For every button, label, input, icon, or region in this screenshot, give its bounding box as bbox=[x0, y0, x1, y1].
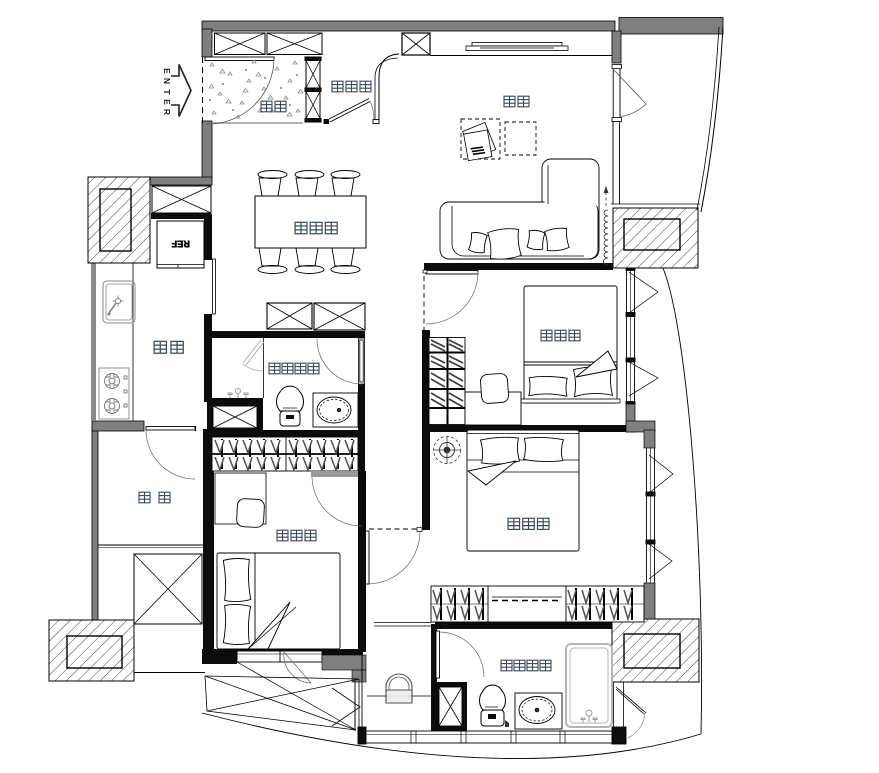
svg-text:N: N bbox=[162, 78, 172, 84]
svg-text:E: E bbox=[162, 99, 172, 105]
svg-text:REF: REF bbox=[171, 239, 190, 249]
svg-text:R: R bbox=[162, 109, 172, 115]
svg-text:E: E bbox=[162, 68, 172, 74]
svg-text:T: T bbox=[162, 89, 172, 95]
